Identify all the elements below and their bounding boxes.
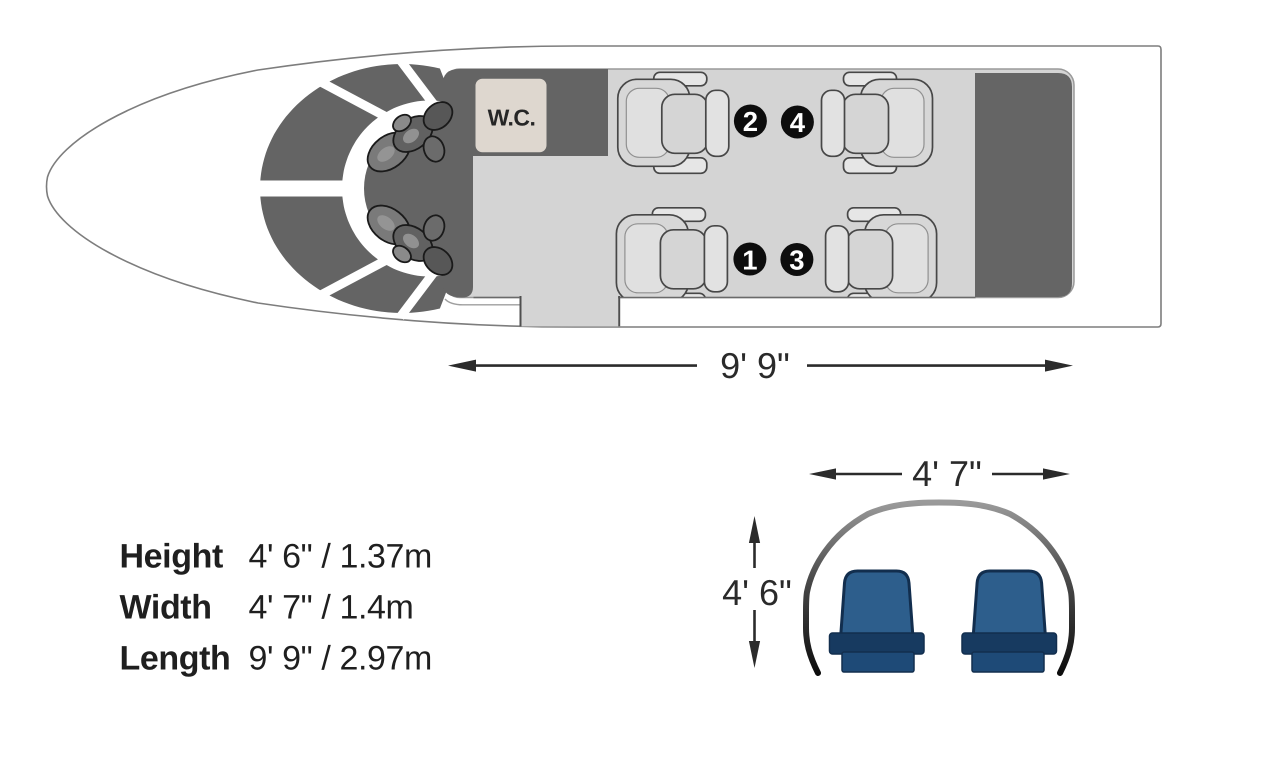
svg-text:Length: Length	[120, 640, 231, 678]
svg-text:1: 1	[742, 244, 757, 275]
svg-text:9' 9" / 2.97m: 9' 9" / 2.97m	[249, 640, 432, 678]
svg-text:Width: Width	[120, 589, 212, 627]
svg-text:2: 2	[743, 106, 758, 137]
svg-text:4' 7": 4' 7"	[912, 453, 982, 494]
svg-text:3: 3	[789, 244, 804, 275]
svg-text:Height: Height	[120, 538, 223, 576]
svg-text:4' 6": 4' 6"	[722, 572, 792, 613]
svg-text:4' 6" / 1.37m: 4' 6" / 1.37m	[249, 538, 432, 576]
svg-text:4' 7" / 1.4m: 4' 7" / 1.4m	[249, 589, 414, 627]
svg-text:9' 9": 9' 9"	[720, 345, 790, 386]
svg-text:4: 4	[790, 107, 806, 138]
svg-text:W.C.: W.C.	[488, 105, 536, 131]
